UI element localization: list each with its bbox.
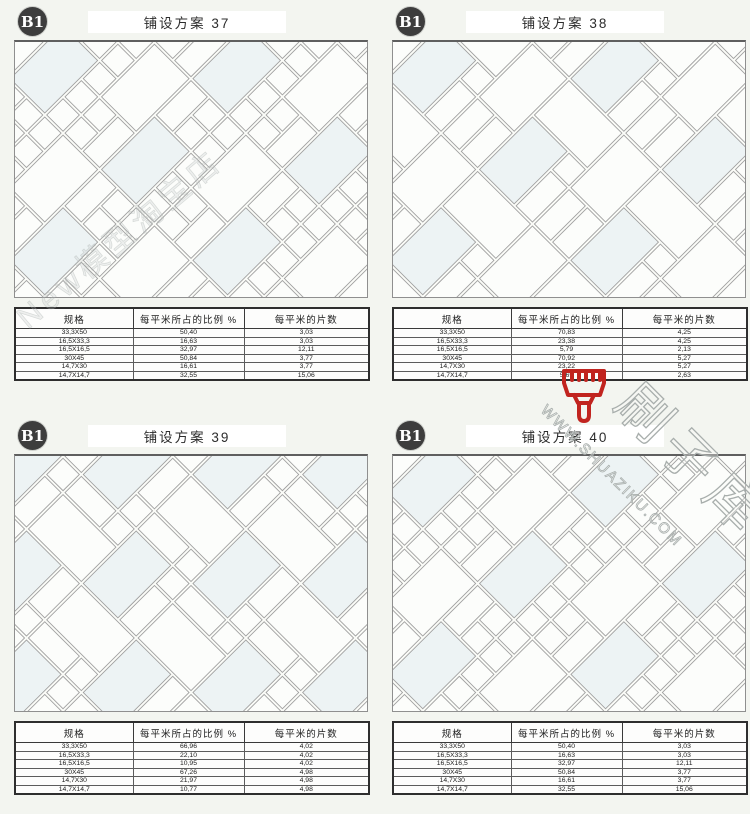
table-cell: 66,96 [133,743,244,752]
table-cell: 16,63 [511,751,622,760]
table-cell: 16,5X16,5 [393,346,511,355]
table-cell: 16,5X33,3 [393,751,511,760]
table-cell: 3,77 [622,777,747,786]
col-header-ratio: 每平米所占的比例 % [133,722,244,743]
table-cell: 3,77 [622,768,747,777]
col-header-spec: 规格 [393,722,511,743]
col-header-ratio: 每平米所占的比例 % [511,308,622,329]
table-row: 30X4570,925,27 [393,354,747,363]
table-row: 16,5X16,532,9712,11 [393,760,747,769]
table-cell: 32,97 [133,346,244,355]
table-cell: 3,03 [244,329,369,338]
table-cell: 70,92 [511,354,622,363]
table-cell: 16,61 [133,363,244,372]
table-row: 33,3X5050,403,03 [15,329,369,338]
table-cell: 3,77 [244,354,369,363]
table-row: 16,5X33,322,104,02 [15,751,369,760]
col-header-spec: 规格 [393,308,511,329]
table-row: 16,5X33,323,384,25 [393,337,747,346]
plan-title: 铺设方案 40 [466,425,664,447]
table-cell: 14,7X14,7 [15,371,133,380]
b1-badge: B1 [396,7,425,36]
table-row: 33,3X5066,964,02 [15,743,369,752]
table-cell: 30X45 [15,354,133,363]
table-row: 16,5X33,316,633,03 [393,751,747,760]
table-cell: 12,11 [622,760,747,769]
col-header-ratio: 每平米所占的比例 % [511,722,622,743]
table-cell: 14,7X30 [393,363,511,372]
table-row: 33,3X5050,403,03 [393,743,747,752]
table-cell: 15,06 [622,785,747,794]
b1-badge: B1 [18,421,47,450]
table-cell: 50,40 [511,743,622,752]
table-cell: 3,03 [622,751,747,760]
table-cell: 5,69 [511,371,622,380]
table-cell: 2,13 [622,346,747,355]
table-header-row: 规格 每平米所占的比例 % 每平米的片数 [393,722,747,743]
table-row: 14,7X3016,613,77 [393,777,747,786]
table-cell: 50,84 [511,768,622,777]
b1-badge: B1 [18,7,47,36]
table-row: 30X4567,264,98 [15,768,369,777]
table-cell: 14,7X14,7 [393,785,511,794]
table-row: 14,7X14,732,5515,06 [393,785,747,794]
plan-title: 铺设方案 38 [466,11,664,33]
table-row: 14,7X3021,974,98 [15,777,369,786]
table-cell: 3,03 [622,743,747,752]
table-cell: 4,02 [244,751,369,760]
table-cell: 4,02 [244,760,369,769]
col-header-count: 每平米的片数 [244,722,369,743]
table-cell: 67,26 [133,768,244,777]
b1-badge: B1 [396,421,425,450]
col-header-count: 每平米的片数 [244,308,369,329]
tile-pattern-diagram [392,40,746,298]
table-row: 16,5X16,532,9712,11 [15,346,369,355]
table-cell: 16,5X16,5 [15,760,133,769]
table-row: 16,5X16,55,792,13 [393,346,747,355]
table-row: 14,7X3023,225,27 [393,363,747,372]
table-cell: 16,5X16,5 [15,346,133,355]
table-cell: 30X45 [393,354,511,363]
table-cell: 14,7X14,7 [15,785,133,794]
col-header-count: 每平米的片数 [622,308,747,329]
table-cell: 70,83 [511,329,622,338]
table-cell: 33,3X50 [393,743,511,752]
table-cell: 50,40 [133,329,244,338]
table-cell: 4,25 [622,329,747,338]
table-cell: 22,10 [133,751,244,760]
col-header-spec: 规格 [15,308,133,329]
table-row: 30X4550,843,77 [15,354,369,363]
plan-panel-39: B1 铺设方案 39 规格 每平米所占的比例 % 每平米的片数 33,3X506… [0,414,372,814]
table-row: 30X4550,843,77 [393,768,747,777]
table-cell: 10,77 [133,785,244,794]
table-header-row: 规格 每平米所占的比例 % 每平米的片数 [393,308,747,329]
plan-panel-38: B1 铺设方案 38 规格 每平米所占的比例 % 每平米的片数 33,3X507… [378,0,750,400]
tile-pattern-diagram [392,454,746,712]
table-cell: 16,5X33,3 [15,751,133,760]
table-row: 14,7X14,732,5515,06 [15,371,369,380]
plan-panel-37: B1 铺设方案 37 规格 每平米所占的比例 % 每平米的片数 33,3X505… [0,0,372,400]
table-cell: 23,22 [511,363,622,372]
table-cell: 32,55 [133,371,244,380]
table-cell: 21,97 [133,777,244,786]
catalog-page: { "page": {"description": "瓷砖铺设方案目录页"}, … [0,0,750,814]
table-cell: 5,27 [622,363,747,372]
table-cell: 5,79 [511,346,622,355]
tile-pattern-diagram [14,40,368,298]
table-cell: 16,63 [133,337,244,346]
table-cell: 14,7X30 [393,777,511,786]
plan-panel-40: B1 铺设方案 40 规格 每平米所占的比例 % 每平米的片数 33,3X505… [378,414,750,814]
table-cell: 12,11 [244,346,369,355]
spec-table: 规格 每平米所占的比例 % 每平米的片数 33,3X5066,964,0216,… [14,721,370,795]
table-cell: 5,27 [622,354,747,363]
tile-pattern-diagram [14,454,368,712]
spec-table: 规格 每平米所占的比例 % 每平米的片数 33,3X5050,403,0316,… [392,721,748,795]
table-row: 33,3X5070,834,25 [393,329,747,338]
table-row: 14,7X14,710,774,98 [15,785,369,794]
table-cell: 10,95 [133,760,244,769]
table-cell: 4,98 [244,785,369,794]
table-cell: 15,06 [244,371,369,380]
table-cell: 33,3X50 [15,743,133,752]
table-cell: 4,25 [622,337,747,346]
col-header-ratio: 每平米所占的比例 % [133,308,244,329]
table-header-row: 规格 每平米所占的比例 % 每平米的片数 [15,308,369,329]
spec-table: 规格 每平米所占的比例 % 每平米的片数 33,3X5050,403,0316,… [14,307,370,381]
table-cell: 16,5X16,5 [393,760,511,769]
table-cell: 50,84 [133,354,244,363]
table-cell: 2,63 [622,371,747,380]
table-cell: 33,3X50 [15,329,133,338]
table-header-row: 规格 每平米所占的比例 % 每平米的片数 [15,722,369,743]
table-cell: 4,98 [244,777,369,786]
table-cell: 4,98 [244,768,369,777]
table-cell: 30X45 [15,768,133,777]
table-cell: 4,02 [244,743,369,752]
col-header-count: 每平米的片数 [622,722,747,743]
table-cell: 14,7X30 [15,363,133,372]
table-row: 16,5X33,316,633,03 [15,337,369,346]
table-cell: 16,5X33,3 [15,337,133,346]
table-cell: 14,7X14,7 [393,371,511,380]
table-cell: 3,03 [244,337,369,346]
plan-title: 铺设方案 37 [88,11,286,33]
table-row: 14,7X3016,613,77 [15,363,369,372]
table-row: 16,5X16,510,954,02 [15,760,369,769]
table-cell: 14,7X30 [15,777,133,786]
table-cell: 33,3X50 [393,329,511,338]
plan-title: 铺设方案 39 [88,425,286,447]
table-cell: 32,55 [511,785,622,794]
table-cell: 32,97 [511,760,622,769]
table-cell: 16,61 [511,777,622,786]
col-header-spec: 规格 [15,722,133,743]
table-cell: 23,38 [511,337,622,346]
spec-table: 规格 每平米所占的比例 % 每平米的片数 33,3X5070,834,2516,… [392,307,748,381]
table-cell: 3,77 [244,363,369,372]
table-cell: 30X45 [393,768,511,777]
table-row: 14,7X14,75,692,63 [393,371,747,380]
table-cell: 16,5X33,3 [393,337,511,346]
